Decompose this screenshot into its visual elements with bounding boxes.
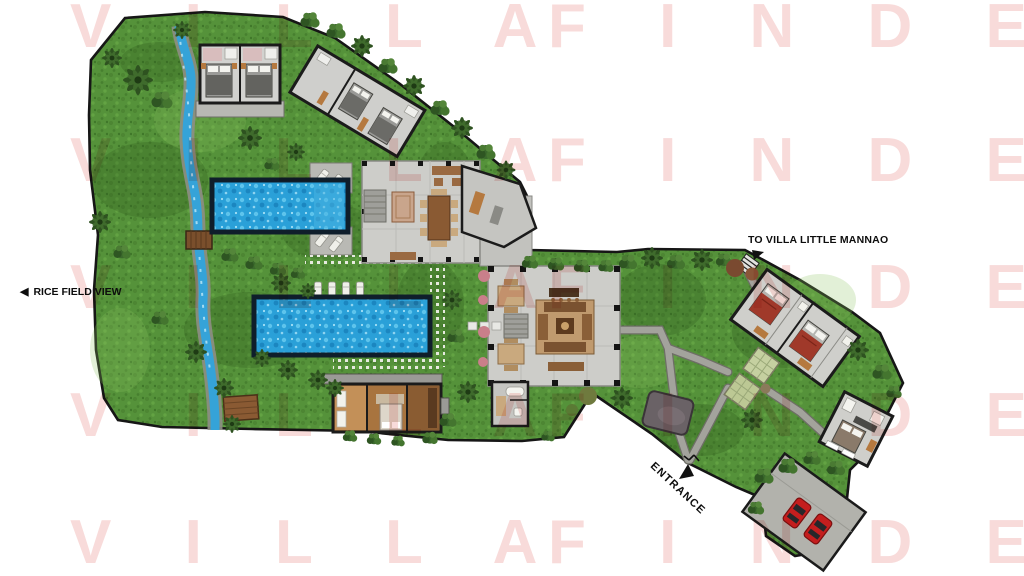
- palm-tree-icon: [611, 387, 633, 409]
- palm-tree-icon: [89, 211, 111, 233]
- kitchen-wing: [462, 166, 536, 247]
- palm-tree-icon: [223, 415, 241, 433]
- palm-tree-icon: [253, 349, 271, 367]
- rug: [376, 394, 404, 404]
- bush-icon: [300, 12, 319, 27]
- palm-tree-icon: [308, 370, 328, 390]
- bush-icon: [566, 404, 578, 416]
- stairs: [504, 314, 528, 338]
- bench: [548, 362, 584, 371]
- main-pool: [254, 297, 430, 355]
- massage-bed: [496, 396, 506, 416]
- palm-tree-icon: [351, 35, 373, 57]
- to-villa-little-mannao-label: TO VILLA LITTLE MANNAO: [748, 234, 888, 246]
- wooden-deck: [223, 395, 259, 421]
- site-map: [0, 0, 1024, 576]
- spa-room: [492, 382, 528, 426]
- bathtub: [506, 387, 524, 396]
- palm-tree-icon: [497, 161, 516, 180]
- bed: [201, 63, 237, 97]
- palm-tree-icon: [641, 247, 663, 269]
- palm-tree-icon: [326, 379, 344, 397]
- palm-tree-icon: [741, 409, 763, 431]
- palm-tree-icon: [691, 249, 713, 271]
- palm-tree-icon: [287, 143, 305, 161]
- palm-tree-icon: [214, 378, 234, 398]
- left-arrow-icon: ◀: [20, 287, 28, 298]
- bridge: [186, 231, 212, 249]
- bush-icon: [378, 58, 397, 73]
- palm-tree-icon: [451, 117, 473, 139]
- central-lounge: [536, 300, 594, 354]
- wardrobe: [428, 388, 437, 428]
- bush-icon: [579, 387, 597, 405]
- bush-icon: [326, 23, 345, 38]
- palm-tree-icon: [300, 283, 316, 299]
- palm-tree-icon: [102, 48, 122, 68]
- palm-tree-icon: [123, 65, 153, 95]
- living-pavilion: [468, 266, 620, 386]
- palm-tree-icon: [185, 341, 207, 363]
- stairs: [364, 190, 386, 222]
- bed: [380, 404, 402, 430]
- palm-tree-icon: [403, 75, 425, 97]
- red-tree-icon: [746, 268, 759, 281]
- red-tree-icon: [726, 259, 744, 277]
- bed: [241, 63, 277, 97]
- palm-tree-icon: [173, 21, 191, 39]
- guest-house-1: [196, 45, 284, 117]
- palm-tree-icon: [442, 290, 462, 310]
- bench: [390, 252, 416, 260]
- palm-tree-icon: [847, 339, 869, 361]
- rice-field-view-label: ◀ RICE FIELD VIEW: [20, 286, 122, 298]
- palm-tree-icon: [278, 360, 298, 380]
- palm-tree-icon: [457, 381, 479, 403]
- bush-icon: [367, 433, 381, 445]
- palm-tree-icon: [238, 126, 262, 150]
- rice-field-view-text: RICE FIELD VIEW: [33, 286, 121, 298]
- villa-site-plan: ◀ RICE FIELD VIEW TO VILLA LITTLE MANNAO…: [0, 0, 1024, 576]
- bush-icon: [391, 436, 404, 447]
- palm-tree-icon: [271, 273, 291, 293]
- dotted-paving: [333, 356, 439, 369]
- bush-icon: [430, 100, 449, 115]
